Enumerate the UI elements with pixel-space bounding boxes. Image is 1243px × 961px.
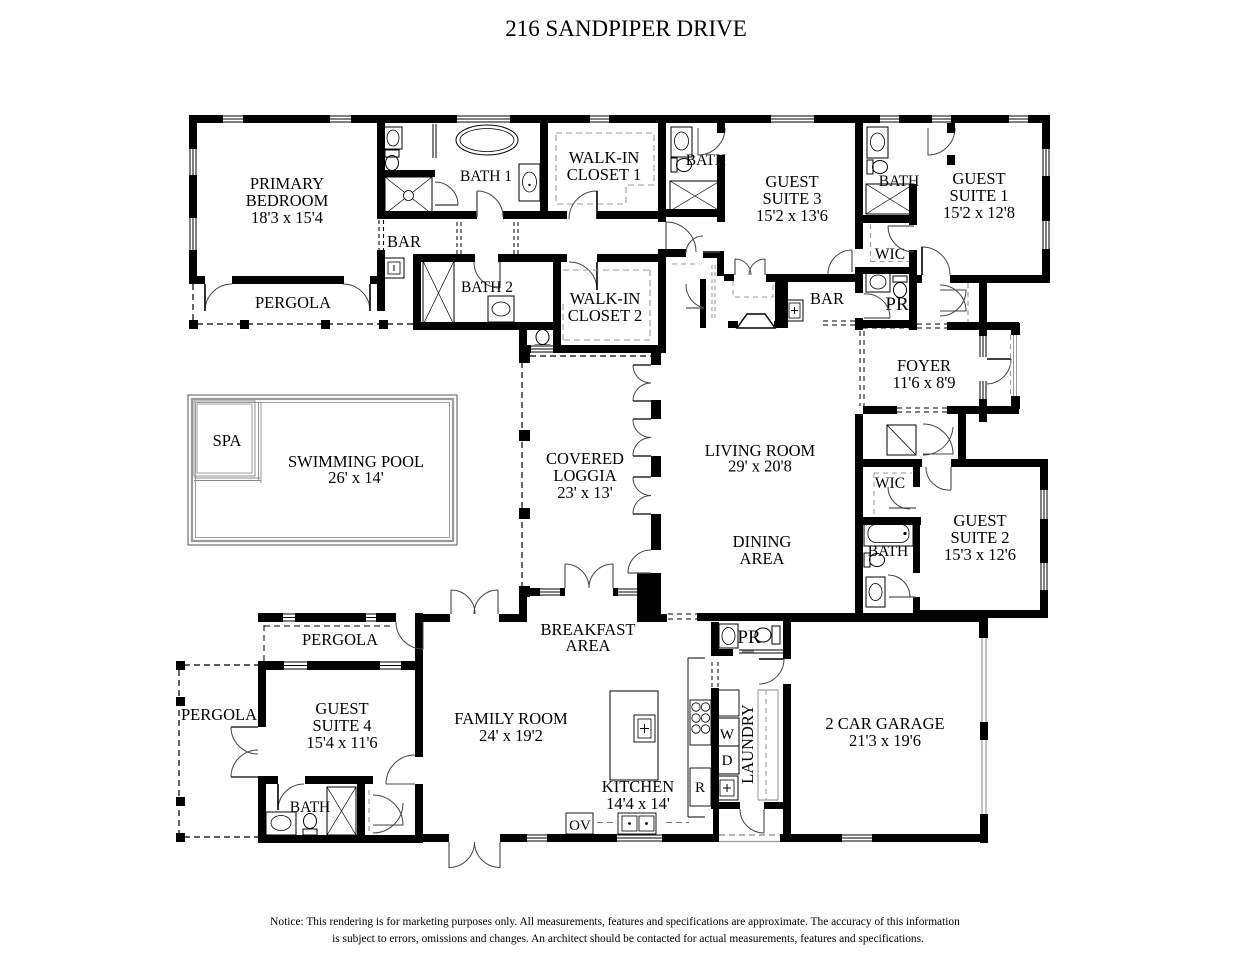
svg-text:AREA: AREA <box>740 549 785 568</box>
svg-text:29' x 20'8: 29' x 20'8 <box>728 457 792 476</box>
svg-text:is subject to errors, omission: is subject to errors, omissions and chan… <box>332 933 924 945</box>
svg-text:SPA: SPA <box>213 431 242 450</box>
svg-text:15'3 x 12'6: 15'3 x 12'6 <box>944 545 1016 564</box>
svg-text:R: R <box>695 780 705 796</box>
svg-text:PERGOLA: PERGOLA <box>302 630 378 649</box>
svg-text:PERGOLA: PERGOLA <box>255 293 331 312</box>
svg-text:15'2 x 12'8: 15'2 x 12'8 <box>943 203 1015 222</box>
svg-text:216 SANDPIPER DRIVE: 216 SANDPIPER DRIVE <box>505 16 747 41</box>
svg-text:WIC: WIC <box>875 475 905 492</box>
svg-text:18'3 x 15'4: 18'3 x 15'4 <box>251 208 323 227</box>
svg-text:14'4 x 14': 14'4 x 14' <box>606 794 670 813</box>
svg-text:CLOSET 2: CLOSET 2 <box>568 306 642 325</box>
svg-text:23' x 13': 23' x 13' <box>557 483 612 502</box>
svg-text:BAR: BAR <box>810 289 844 308</box>
svg-text:D: D <box>722 753 733 769</box>
svg-text:24' x 19'2: 24' x 19'2 <box>479 726 543 745</box>
svg-text:PERGOLA: PERGOLA <box>181 705 257 724</box>
svg-text:21'3 x 19'6: 21'3 x 19'6 <box>849 731 921 750</box>
svg-text:BATH 2: BATH 2 <box>461 279 513 296</box>
svg-text:11'6 x 8'9: 11'6 x 8'9 <box>892 373 955 392</box>
svg-text:W: W <box>720 727 735 743</box>
svg-text:BATH 1: BATH 1 <box>460 168 512 185</box>
svg-text:Notice: This rendering is for: Notice: This rendering is for marketing … <box>270 916 960 928</box>
svg-text:CLOSET 1: CLOSET 1 <box>567 165 641 184</box>
svg-text:AREA: AREA <box>566 636 611 655</box>
svg-text:OV: OV <box>569 818 591 834</box>
svg-text:LAUNDRY: LAUNDRY <box>738 704 757 784</box>
svg-text:15'2 x 13'6: 15'2 x 13'6 <box>756 206 828 225</box>
svg-text:15'4 x 11'6: 15'4 x 11'6 <box>306 733 377 752</box>
svg-text:BAR: BAR <box>387 232 421 251</box>
svg-text:26' x 14': 26' x 14' <box>328 468 383 487</box>
